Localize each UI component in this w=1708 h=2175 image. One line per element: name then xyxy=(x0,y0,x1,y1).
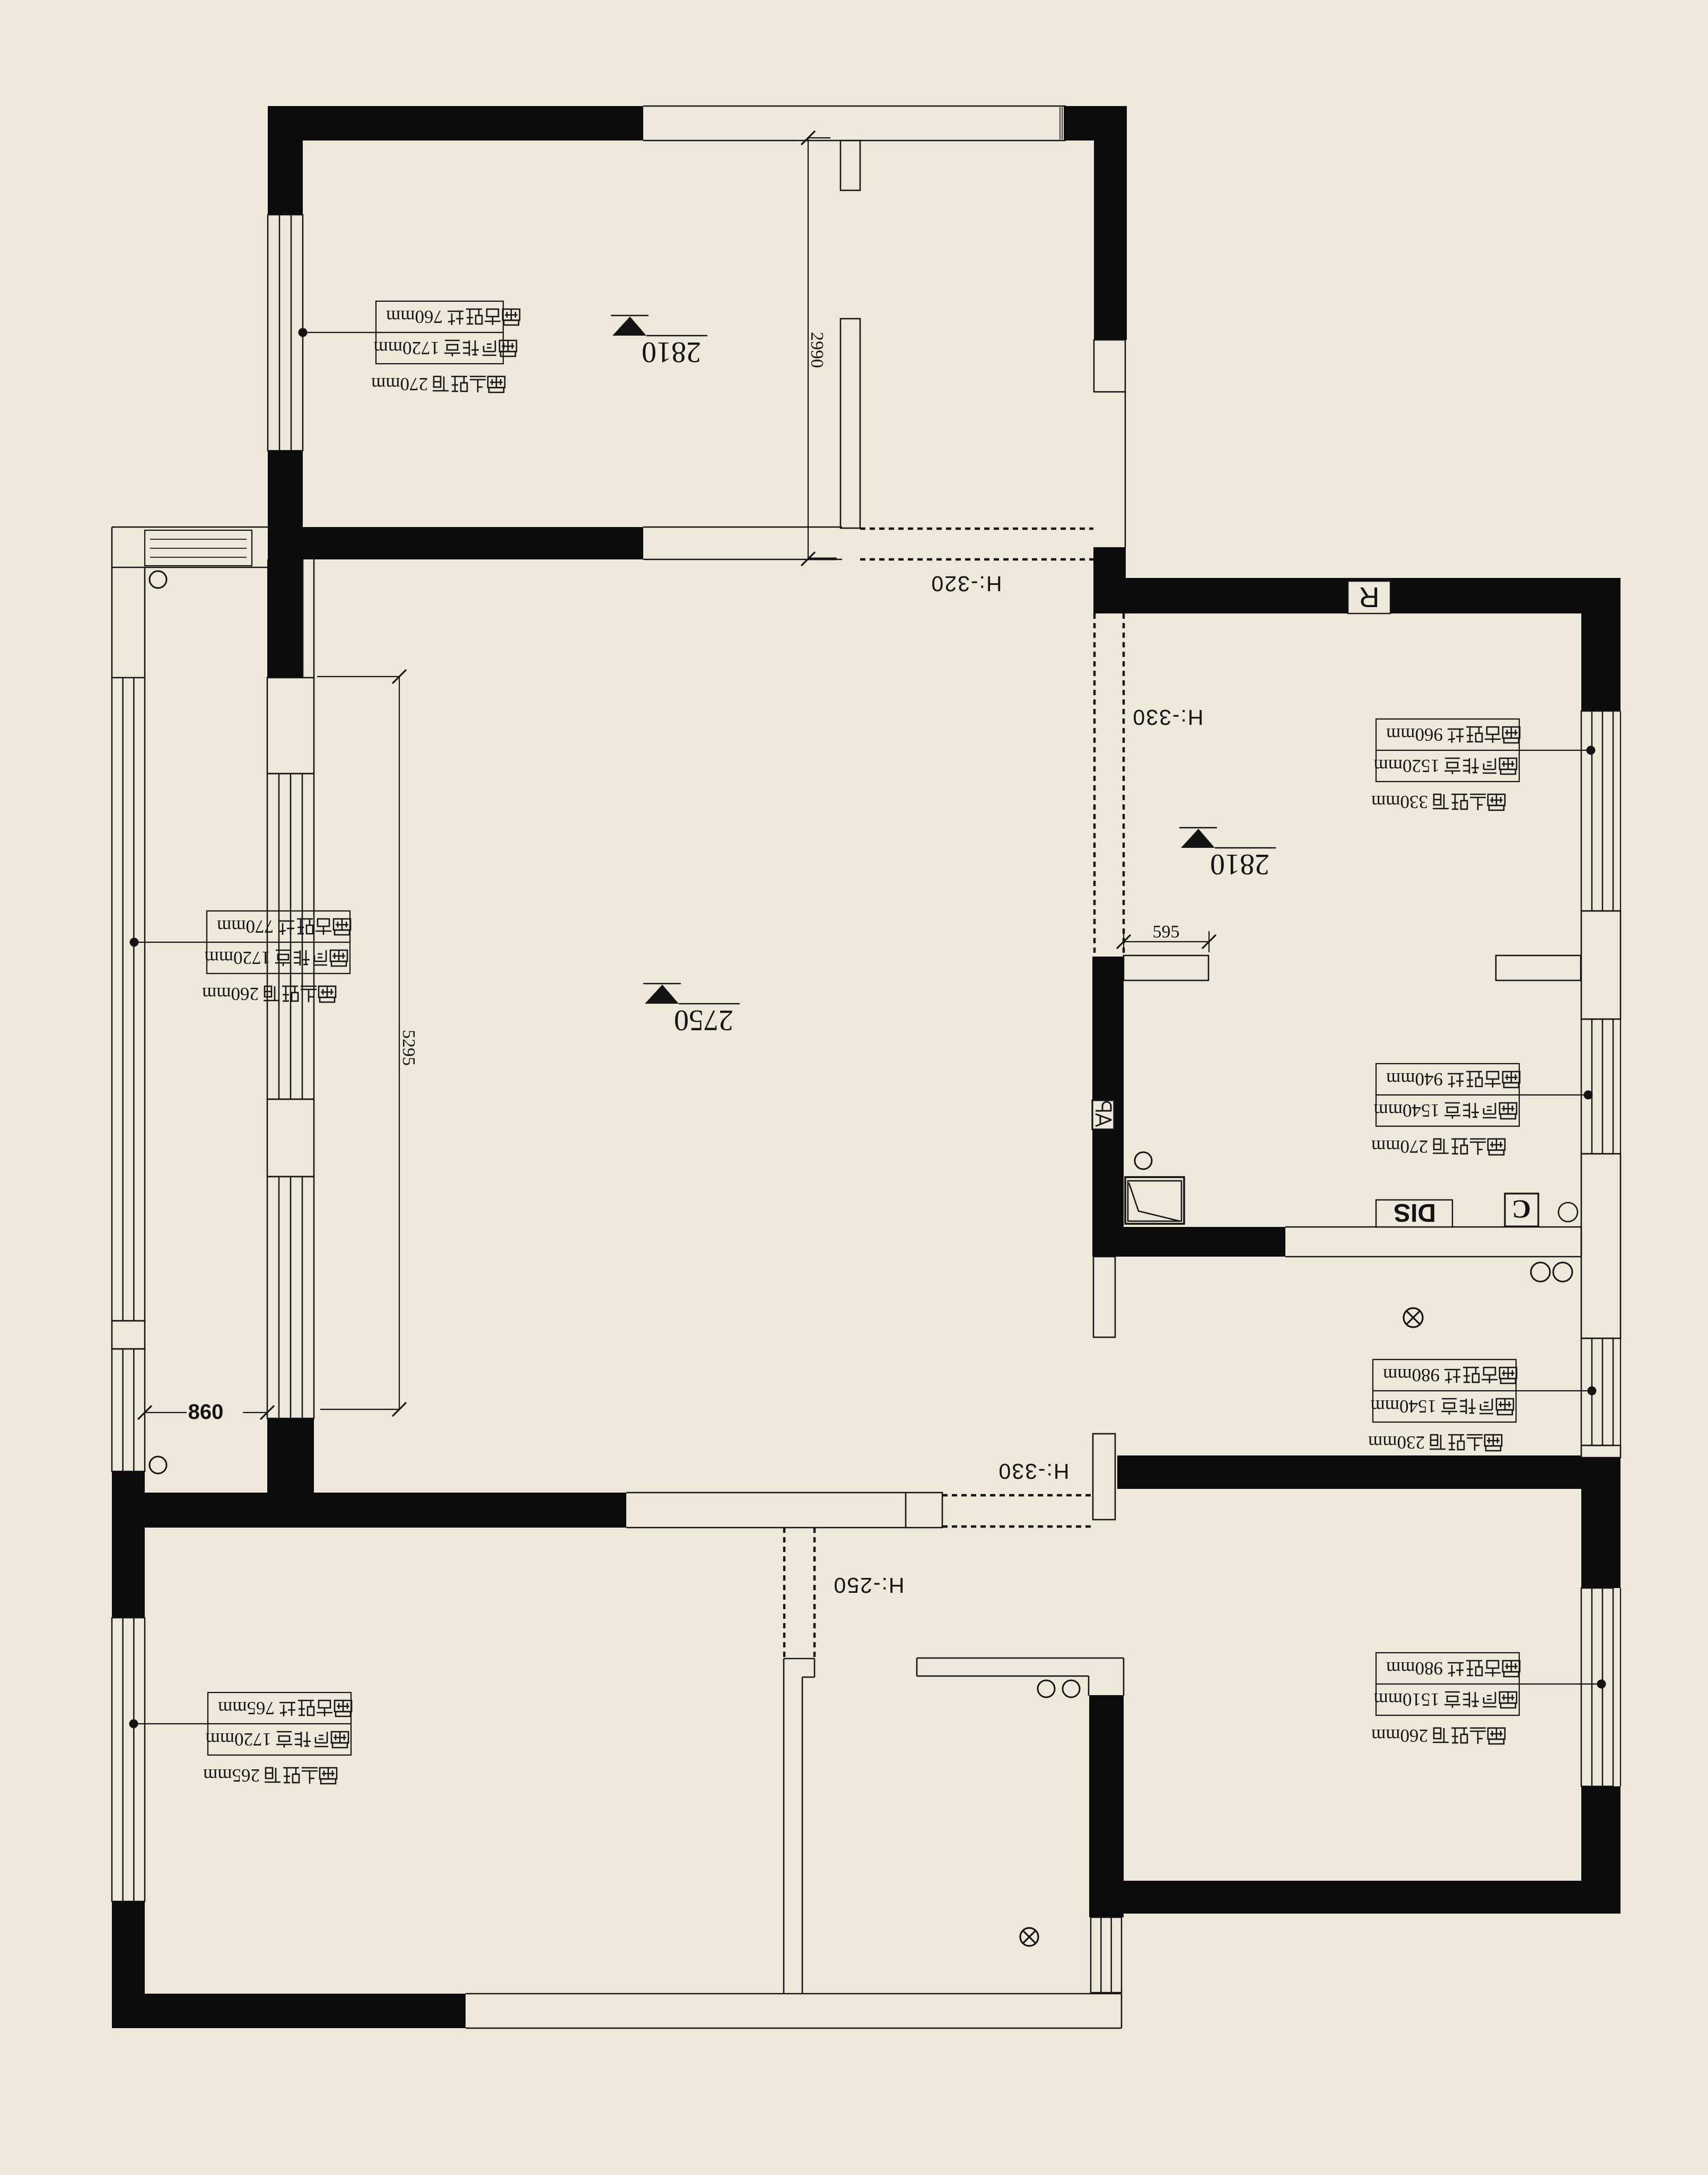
svg-text:1720mm: 1720mm xyxy=(206,1729,271,1750)
svg-text:980mm: 980mm xyxy=(1386,1658,1443,1679)
svg-text:1720mm: 1720mm xyxy=(205,948,270,968)
svg-text:H:-330: H:-330 xyxy=(997,1459,1069,1484)
svg-text:C: C xyxy=(1512,1195,1531,1224)
svg-text:2990: 2990 xyxy=(807,332,827,368)
svg-text:260mm: 260mm xyxy=(202,984,259,1004)
svg-text:H:-250: H:-250 xyxy=(833,1573,904,1598)
svg-text:1540mm: 1540mm xyxy=(1374,1100,1440,1121)
svg-text:H:-330: H:-330 xyxy=(1132,705,1203,730)
svg-text:330mm: 330mm xyxy=(1371,792,1428,812)
svg-text:DIS: DIS xyxy=(1394,1198,1436,1226)
svg-text:2810: 2810 xyxy=(1210,848,1269,881)
svg-text:1510mm: 1510mm xyxy=(1374,1689,1440,1710)
svg-text:765mm: 765mm xyxy=(218,1698,275,1718)
svg-text:960mm: 960mm xyxy=(1386,724,1443,745)
svg-text:595: 595 xyxy=(1153,922,1180,942)
svg-text:230mm: 230mm xyxy=(1368,1432,1425,1453)
svg-text:860: 860 xyxy=(188,1400,224,1424)
svg-text:260mm: 260mm xyxy=(1371,1725,1428,1746)
svg-text:770mm: 770mm xyxy=(217,916,274,937)
svg-text:265mm: 265mm xyxy=(203,1765,260,1786)
svg-text:R: R xyxy=(1359,581,1380,613)
svg-text:1520mm: 1520mm xyxy=(1374,756,1440,776)
svg-text:760mm: 760mm xyxy=(386,306,443,327)
svg-text:940mm: 940mm xyxy=(1386,1069,1443,1090)
svg-text:5295: 5295 xyxy=(399,1030,418,1066)
svg-text:1540mm: 1540mm xyxy=(1371,1396,1437,1417)
svg-text:2750: 2750 xyxy=(674,1004,733,1037)
svg-text:270mm: 270mm xyxy=(1371,1136,1428,1157)
svg-text:H:-320: H:-320 xyxy=(930,572,1002,596)
svg-text:270mm: 270mm xyxy=(371,374,428,394)
svg-text:1720mm: 1720mm xyxy=(374,338,440,358)
svg-text:980mm: 980mm xyxy=(1383,1365,1440,1385)
svg-text:2810: 2810 xyxy=(642,336,701,369)
